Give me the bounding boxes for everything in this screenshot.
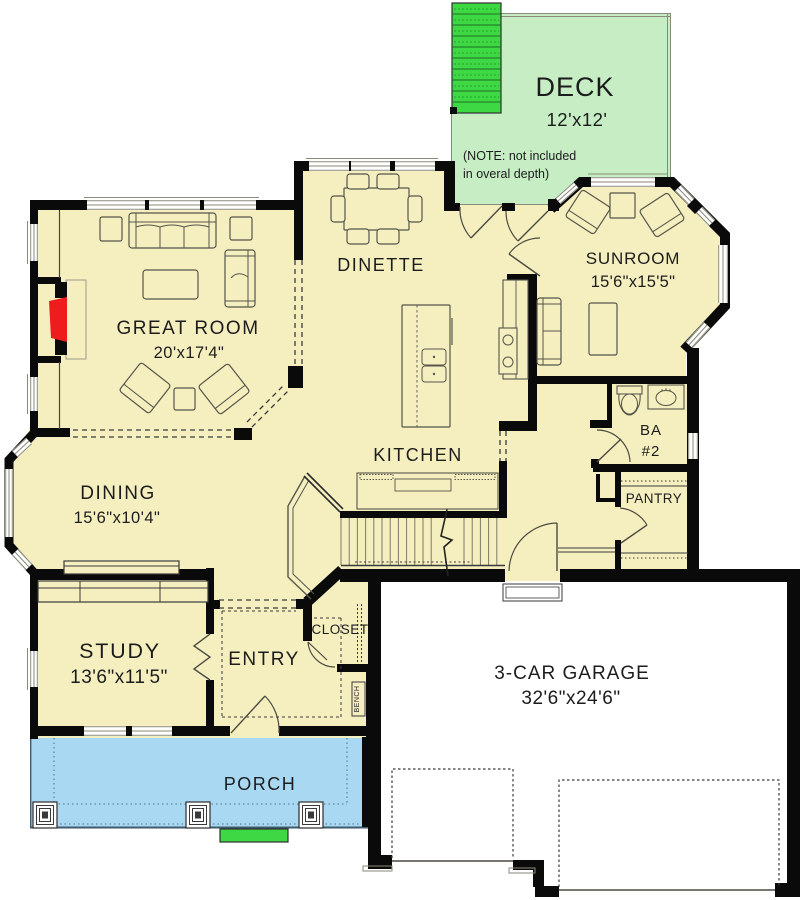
svg-text:GREAT ROOM: GREAT ROOM — [116, 318, 259, 339]
svg-text:DINETTE: DINETTE — [337, 255, 425, 275]
svg-text:DINING: DINING — [80, 483, 156, 504]
svg-text:20'x17'4": 20'x17'4" — [154, 344, 225, 362]
svg-text:#2: #2 — [642, 443, 661, 460]
svg-text:15'6"x15'5": 15'6"x15'5" — [591, 273, 676, 291]
svg-text:12'x12': 12'x12' — [547, 109, 608, 130]
svg-text:13'6"x11'5": 13'6"x11'5" — [70, 667, 168, 688]
svg-text:PORCH: PORCH — [224, 774, 297, 794]
svg-text:DECK: DECK — [535, 72, 614, 102]
svg-text:BA: BA — [640, 422, 662, 439]
svg-text:32'6"x24'6": 32'6"x24'6" — [521, 688, 620, 709]
svg-text:PANTRY: PANTRY — [626, 491, 683, 506]
svg-text:SUNROOM: SUNROOM — [586, 249, 680, 268]
svg-text:CLOSET: CLOSET — [311, 622, 368, 637]
svg-text:KITCHEN: KITCHEN — [373, 445, 463, 465]
svg-text:BENCH: BENCH — [354, 685, 361, 712]
svg-text:(NOTE: not included: (NOTE: not included — [463, 149, 576, 163]
svg-text:15'6"x10'4": 15'6"x10'4" — [74, 509, 161, 527]
svg-text:3-CAR GARAGE: 3-CAR GARAGE — [494, 663, 650, 684]
svg-text:STUDY: STUDY — [79, 639, 161, 663]
svg-text:ENTRY: ENTRY — [228, 649, 300, 670]
svg-text:in overal depth): in overal depth) — [463, 167, 549, 181]
